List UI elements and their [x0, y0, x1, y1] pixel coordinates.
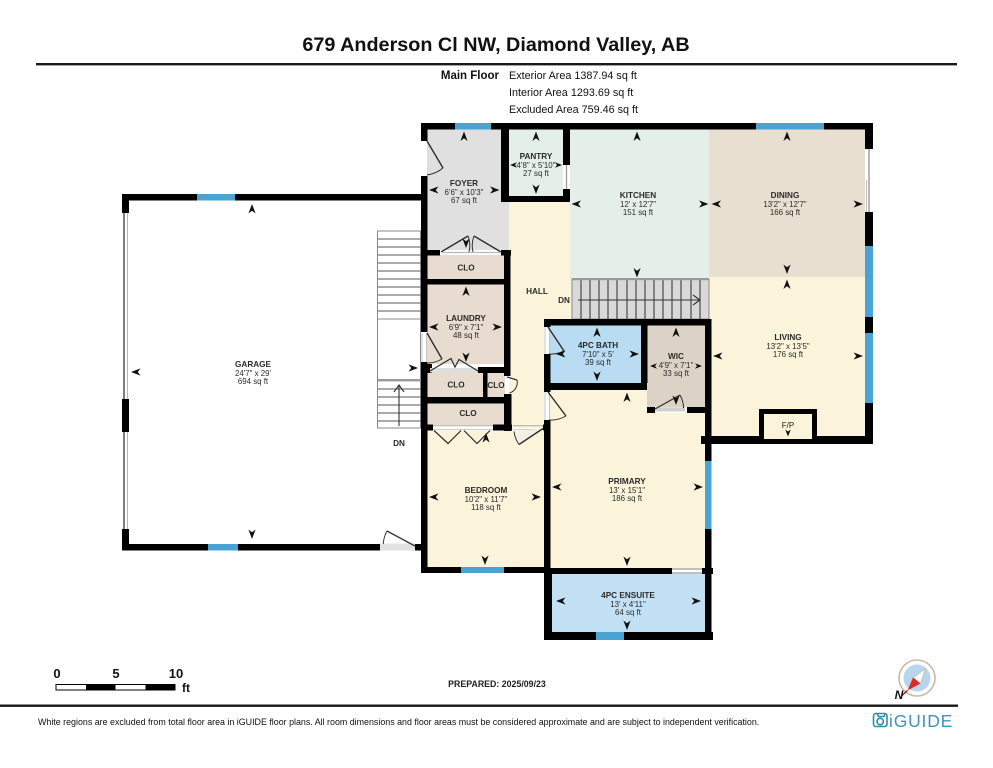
svg-text:LAUNDRY: LAUNDRY: [446, 314, 486, 323]
svg-text:166 sq ft: 166 sq ft: [770, 208, 801, 217]
svg-text:4PC ENSUITE: 4PC ENSUITE: [601, 591, 655, 600]
svg-text:DN: DN: [393, 439, 405, 448]
svg-text:679 Anderson Cl NW, Diamond Va: 679 Anderson Cl NW, Diamond Valley, AB: [302, 34, 689, 56]
svg-text:PANTRY: PANTRY: [520, 152, 553, 161]
svg-text:33 sq ft: 33 sq ft: [663, 369, 690, 378]
svg-text:64 sq ft: 64 sq ft: [615, 608, 642, 617]
svg-text:PRIMARY: PRIMARY: [608, 477, 646, 486]
svg-text:10: 10: [169, 666, 183, 681]
svg-text:CLO: CLO: [487, 381, 505, 390]
svg-text:DINING: DINING: [771, 191, 800, 200]
svg-text:FOYER: FOYER: [450, 179, 478, 188]
svg-text:ft: ft: [182, 681, 190, 695]
svg-text:186 sq ft: 186 sq ft: [612, 494, 643, 503]
svg-text:0: 0: [53, 666, 60, 681]
svg-text:White regions are excluded fro: White regions are excluded from total fl…: [38, 717, 759, 727]
svg-text:4PC BATH: 4PC BATH: [578, 341, 618, 350]
svg-text:PREPARED: 2025/09/23: PREPARED: 2025/09/23: [448, 679, 546, 689]
svg-text:694 sq ft: 694 sq ft: [238, 377, 269, 386]
svg-text:48 sq ft: 48 sq ft: [453, 331, 480, 340]
svg-text:CLO: CLO: [447, 381, 465, 390]
svg-text:Main Floor: Main Floor: [441, 70, 500, 82]
svg-text:CLO: CLO: [457, 264, 475, 273]
svg-text:39 sq ft: 39 sq ft: [585, 358, 612, 367]
svg-text:5: 5: [112, 666, 119, 681]
svg-text:118 sq ft: 118 sq ft: [471, 503, 501, 512]
svg-text:67 sq ft: 67 sq ft: [451, 196, 478, 205]
svg-text:F/P: F/P: [782, 421, 794, 430]
svg-text:LIVING: LIVING: [774, 333, 801, 342]
svg-text:176 sq ft: 176 sq ft: [773, 350, 804, 359]
svg-text:GARAGE: GARAGE: [235, 360, 271, 369]
svg-text:27 sq ft: 27 sq ft: [523, 169, 550, 178]
svg-text:CLO: CLO: [459, 409, 477, 418]
svg-text:HALL: HALL: [526, 287, 548, 296]
svg-text:151 sq ft: 151 sq ft: [623, 208, 654, 217]
svg-text:iGUIDE: iGUIDE: [889, 711, 953, 731]
svg-text:N: N: [895, 688, 904, 702]
svg-text:Exterior Area 1387.94 sq ft: Exterior Area 1387.94 sq ft: [509, 70, 637, 82]
svg-text:BEDROOM: BEDROOM: [465, 486, 508, 495]
svg-text:WIC: WIC: [668, 352, 684, 361]
svg-text:Excluded Area 759.46 sq ft: Excluded Area 759.46 sq ft: [509, 104, 638, 116]
svg-text:KITCHEN: KITCHEN: [620, 191, 656, 200]
svg-text:DN: DN: [558, 296, 570, 305]
svg-text:Interior Area 1293.69 sq ft: Interior Area 1293.69 sq ft: [509, 87, 633, 99]
